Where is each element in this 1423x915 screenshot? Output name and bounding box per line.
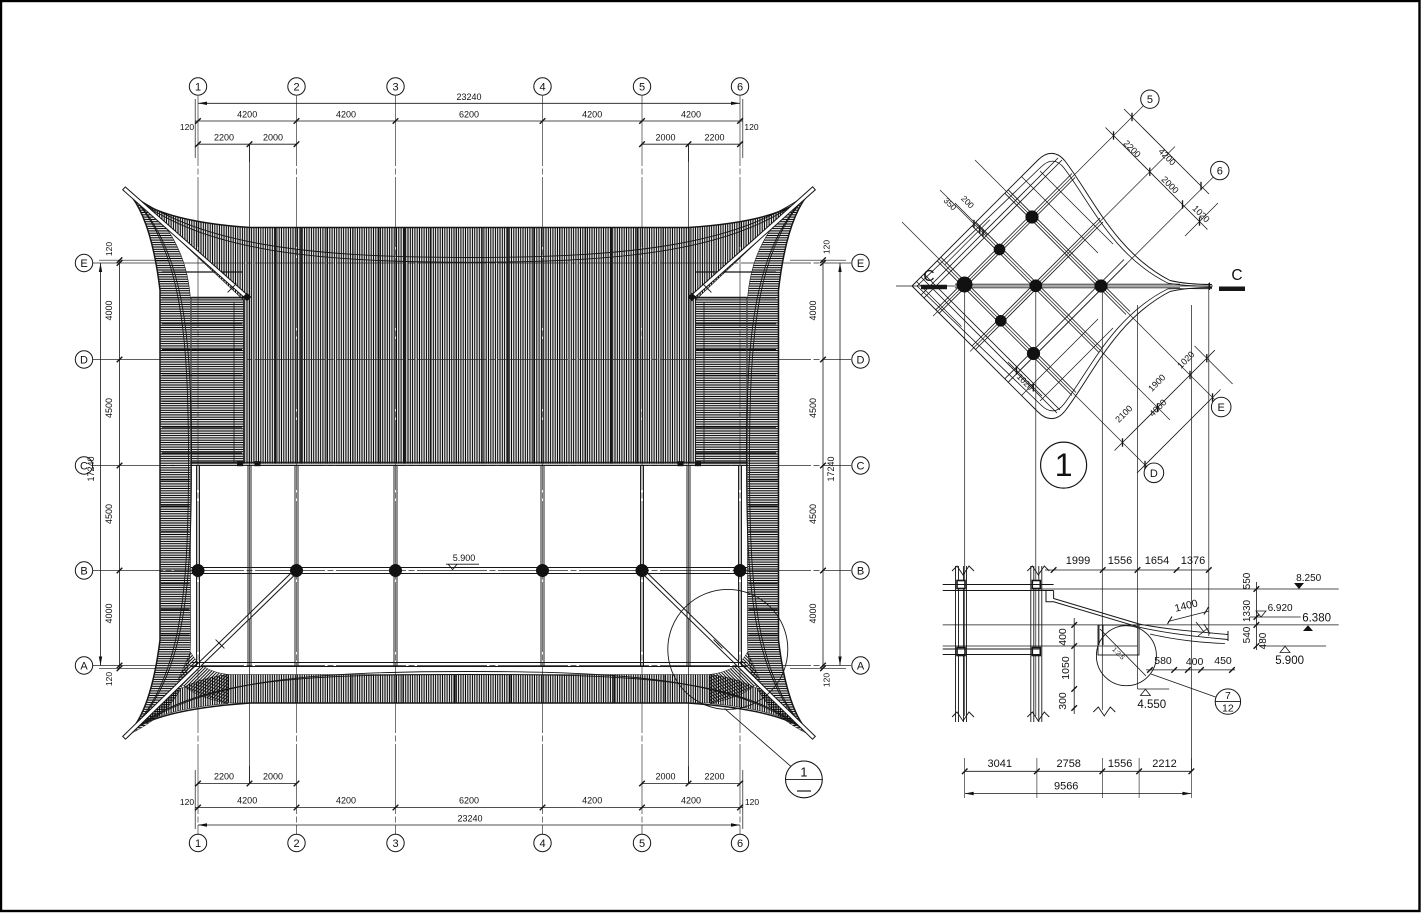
svg-text:7: 7 [1225, 690, 1231, 702]
svg-text:2000: 2000 [655, 133, 675, 143]
svg-text:6.920: 6.920 [1268, 603, 1293, 614]
svg-text:1: 1 [195, 838, 201, 850]
svg-text:E: E [857, 258, 864, 270]
svg-text:120: 120 [744, 122, 758, 132]
svg-text:6: 6 [1217, 166, 1223, 178]
svg-text:2: 2 [293, 838, 299, 850]
svg-text:2: 2 [293, 82, 299, 94]
svg-text:1330: 1330 [1242, 599, 1253, 622]
svg-text:4000: 4000 [104, 300, 114, 320]
svg-text:1: 1 [195, 82, 201, 94]
svg-text:8.250: 8.250 [1296, 573, 1321, 584]
svg-text:2200: 2200 [704, 133, 724, 143]
svg-text:4500: 4500 [104, 504, 114, 524]
svg-text:2200: 2200 [214, 133, 234, 143]
svg-text:5.900: 5.900 [453, 553, 476, 563]
svg-text:D: D [1150, 468, 1158, 480]
svg-text:480: 480 [1258, 632, 1269, 649]
svg-text:B: B [857, 566, 864, 578]
svg-text:E: E [80, 258, 87, 270]
svg-text:A: A [857, 661, 865, 673]
svg-text:17240: 17240 [826, 456, 836, 481]
svg-text:400: 400 [1057, 628, 1069, 646]
svg-text:300: 300 [1057, 692, 1069, 710]
svg-text:4200: 4200 [582, 796, 602, 806]
svg-text:C: C [857, 461, 865, 473]
svg-text:120: 120 [104, 672, 114, 686]
svg-text:5: 5 [1147, 94, 1153, 106]
svg-text:400: 400 [1186, 656, 1204, 668]
svg-text:5.900: 5.900 [1275, 655, 1304, 667]
svg-text:2212: 2212 [1152, 758, 1176, 770]
svg-text:120: 120 [180, 797, 194, 807]
svg-text:D: D [80, 355, 88, 367]
svg-text:6200: 6200 [459, 796, 479, 806]
svg-text:4500: 4500 [104, 398, 114, 418]
svg-text:6: 6 [737, 82, 743, 94]
svg-text:2000: 2000 [263, 772, 283, 782]
svg-text:6.380: 6.380 [1302, 613, 1331, 625]
svg-text:3: 3 [392, 82, 398, 94]
svg-text:4500: 4500 [808, 504, 818, 524]
svg-text:2200: 2200 [704, 772, 724, 782]
svg-text:4200: 4200 [336, 110, 356, 120]
svg-text:550: 550 [1242, 572, 1253, 589]
svg-text:120: 120 [745, 797, 759, 807]
svg-text:4200: 4200 [237, 796, 257, 806]
svg-text:C: C [1231, 267, 1242, 284]
svg-text:580: 580 [1154, 655, 1172, 667]
svg-text:1556: 1556 [1108, 555, 1132, 567]
svg-text:1050: 1050 [1060, 656, 1072, 680]
svg-text:23240: 23240 [457, 814, 482, 824]
svg-text:2758: 2758 [1056, 758, 1080, 770]
svg-text:6: 6 [737, 838, 743, 850]
svg-text:120: 120 [822, 240, 832, 254]
svg-text:120: 120 [104, 242, 114, 256]
svg-text:1376: 1376 [1181, 555, 1205, 567]
svg-text:6200: 6200 [459, 110, 479, 120]
svg-text:23240: 23240 [456, 92, 481, 102]
svg-text:1: 1 [1055, 447, 1073, 483]
svg-text:1556: 1556 [1108, 758, 1132, 770]
svg-text:120: 120 [180, 122, 194, 132]
svg-text:4000: 4000 [104, 603, 114, 623]
svg-text:4200: 4200 [336, 796, 356, 806]
svg-text:2000: 2000 [655, 772, 675, 782]
svg-text:D: D [857, 355, 865, 367]
svg-text:9566: 9566 [1054, 781, 1078, 793]
svg-text:1: 1 [800, 765, 807, 780]
svg-text:2000: 2000 [263, 133, 283, 143]
svg-text:4: 4 [539, 82, 545, 94]
svg-text:120: 120 [822, 673, 832, 687]
svg-text:17240: 17240 [86, 456, 96, 481]
svg-text:A: A [80, 661, 88, 673]
svg-text:1654: 1654 [1145, 555, 1169, 567]
svg-text:5: 5 [639, 838, 645, 850]
svg-text:4200: 4200 [237, 110, 257, 120]
svg-text:1999: 1999 [1066, 555, 1090, 567]
svg-text:E: E [1218, 402, 1225, 414]
svg-text:4000: 4000 [808, 300, 818, 320]
svg-text:4000: 4000 [808, 603, 818, 623]
svg-text:2200: 2200 [214, 772, 234, 782]
svg-text:B: B [80, 566, 87, 578]
svg-text:4.550: 4.550 [1137, 699, 1166, 711]
svg-text:540: 540 [1242, 626, 1253, 643]
svg-text:4: 4 [539, 838, 545, 850]
svg-text:5: 5 [639, 82, 645, 94]
svg-text:C: C [923, 268, 934, 285]
svg-text:3041: 3041 [988, 758, 1012, 770]
svg-text:3: 3 [392, 838, 398, 850]
svg-text:4200: 4200 [681, 796, 701, 806]
svg-text:4200: 4200 [681, 110, 701, 120]
svg-text:4200: 4200 [582, 110, 602, 120]
svg-text:450: 450 [1214, 655, 1232, 667]
svg-text:4500: 4500 [808, 398, 818, 418]
svg-text:12: 12 [1222, 703, 1234, 715]
